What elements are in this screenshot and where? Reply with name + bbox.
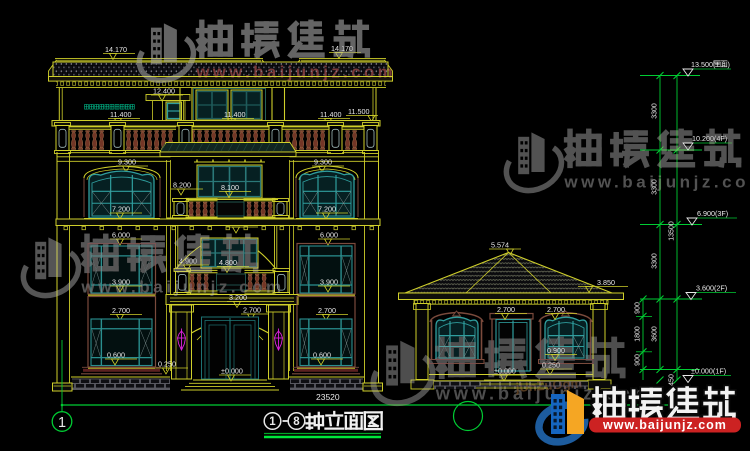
svg-text:0.600: 0.600 (107, 351, 125, 360)
svg-text:12.400: 12.400 (153, 87, 175, 96)
svg-text:11.400: 11.400 (110, 110, 131, 119)
svg-text:23520: 23520 (316, 392, 340, 402)
svg-text:3300: 3300 (652, 103, 659, 119)
svg-text:900: 900 (635, 302, 642, 314)
svg-text:2.700: 2.700 (243, 306, 261, 315)
svg-text:2.700: 2.700 (112, 306, 130, 315)
svg-text:www.baijunjz.com: www.baijunjz.com (195, 62, 396, 81)
svg-text:8.100: 8.100 (221, 183, 239, 192)
svg-text:8: 8 (293, 416, 300, 428)
svg-text:9.300: 9.300 (118, 158, 136, 167)
svg-text:9.300: 9.300 (314, 158, 332, 167)
svg-text:0.600: 0.600 (313, 351, 331, 360)
svg-text:www.baijunjz.com: www.baijunjz.com (80, 277, 284, 296)
svg-text:3300: 3300 (652, 253, 659, 269)
svg-text:2.700: 2.700 (497, 305, 515, 314)
svg-text:3.850: 3.850 (597, 278, 615, 287)
svg-text:8.200: 8.200 (173, 181, 191, 190)
svg-text:1: 1 (269, 416, 276, 428)
svg-text:2.700: 2.700 (318, 306, 336, 315)
svg-text:±0.000(1F): ±0.000(1F) (691, 367, 726, 376)
svg-text:14.170: 14.170 (105, 45, 127, 54)
svg-text:www.baijunjz.com: www.baijunjz.com (563, 172, 750, 191)
svg-text:±0.000: ±0.000 (221, 367, 243, 376)
svg-text:1: 1 (58, 415, 66, 431)
svg-text:6.900(3F): 6.900(3F) (697, 209, 728, 218)
svg-text:5.574: 5.574 (491, 241, 509, 250)
svg-text:7.200: 7.200 (112, 205, 130, 214)
svg-text:13.500(: 13.500( (691, 60, 716, 69)
svg-text:3.900: 3.900 (320, 278, 338, 287)
svg-text:1800: 1800 (635, 326, 642, 342)
svg-text:3.600(2F): 3.600(2F) (696, 284, 727, 293)
svg-text:www.baijunjz.com: www.baijunjz.com (602, 418, 727, 432)
svg-text:11.500: 11.500 (348, 107, 369, 116)
svg-text:3600: 3600 (652, 326, 659, 342)
svg-text:): ) (728, 60, 730, 69)
svg-text:900: 900 (635, 354, 642, 366)
svg-text:6.000: 6.000 (112, 231, 130, 240)
svg-text:450: 450 (669, 374, 676, 386)
svg-text:7.200: 7.200 (318, 205, 336, 214)
svg-text:11.400: 11.400 (320, 110, 341, 119)
svg-text:6.000: 6.000 (320, 231, 338, 240)
svg-text:13500: 13500 (669, 221, 676, 241)
svg-text:11.400: 11.400 (224, 110, 245, 119)
svg-text:2.700: 2.700 (547, 305, 565, 314)
